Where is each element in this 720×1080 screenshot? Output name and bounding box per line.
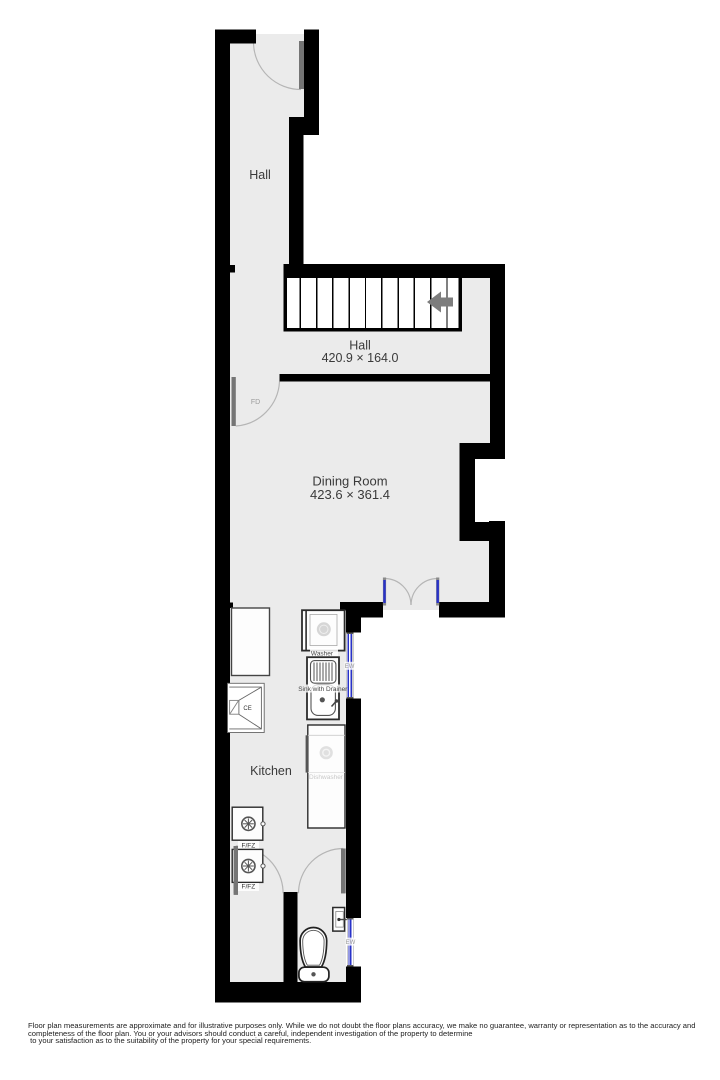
svg-text:CE: CE [243,706,251,712]
svg-text:EW: EW [346,940,356,946]
svg-text:Kitchen: Kitchen [250,764,292,778]
svg-text:EW: EW [345,664,355,670]
svg-text:420.9 × 164.0: 420.9 × 164.0 [322,351,399,365]
svg-text:F/FZ: F/FZ [242,884,256,891]
svg-text:FD: FD [251,399,260,406]
svg-text:F/FZ: F/FZ [242,843,256,850]
svg-text:Hall: Hall [249,168,271,182]
svg-text:423.6 × 361.4: 423.6 × 361.4 [310,487,390,502]
svg-text:Sink with Drainer: Sink with Drainer [298,686,348,693]
svg-text:Dishwasher: Dishwasher [309,774,344,781]
